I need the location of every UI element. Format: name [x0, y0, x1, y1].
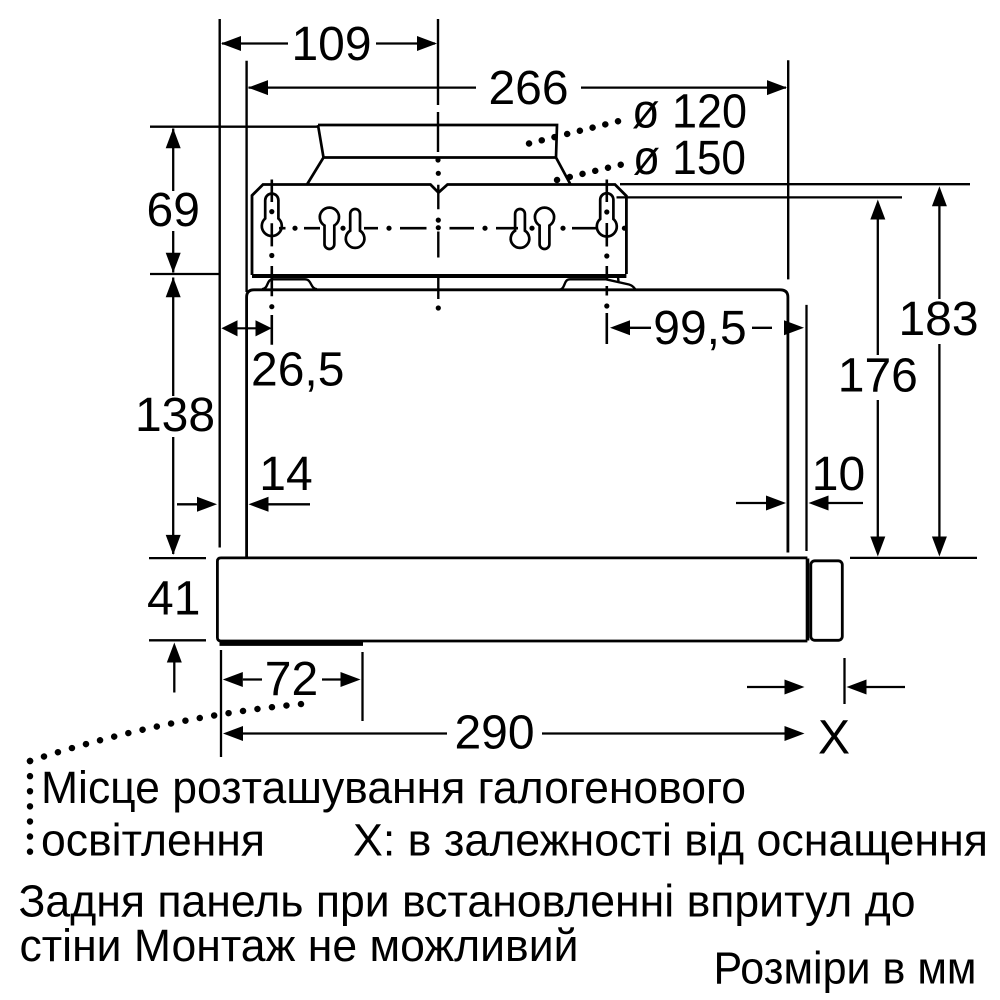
svg-text:69: 69	[147, 184, 200, 237]
svg-text:41: 41	[147, 573, 200, 626]
svg-text:99,5: 99,5	[653, 302, 746, 355]
svg-text:Місце розташування галогеновог: Місце розташування галогенового	[41, 762, 746, 813]
svg-text:26,5: 26,5	[251, 344, 344, 397]
svg-text:72: 72	[265, 653, 318, 706]
svg-text:X: в залежності від оснащення: X: в залежності від оснащення	[353, 815, 988, 866]
svg-text:X: X	[818, 712, 850, 765]
svg-text:ø 120: ø 120	[632, 86, 747, 139]
svg-text:109: 109	[291, 18, 371, 71]
svg-text:183: 183	[898, 293, 978, 346]
svg-text:14: 14	[259, 448, 312, 501]
svg-text:Розміри в мм: Розміри в мм	[714, 942, 977, 993]
svg-text:стіни Монтаж не можливий: стіни Монтаж не можливий	[20, 920, 579, 971]
svg-text:290: 290	[454, 707, 534, 760]
svg-text:176: 176	[838, 349, 918, 402]
svg-text:10: 10	[812, 448, 865, 501]
svg-text:266: 266	[488, 62, 568, 115]
svg-text:ø 150: ø 150	[633, 132, 746, 185]
svg-text:освітлення: освітлення	[41, 815, 265, 866]
svg-text:138: 138	[135, 389, 215, 442]
